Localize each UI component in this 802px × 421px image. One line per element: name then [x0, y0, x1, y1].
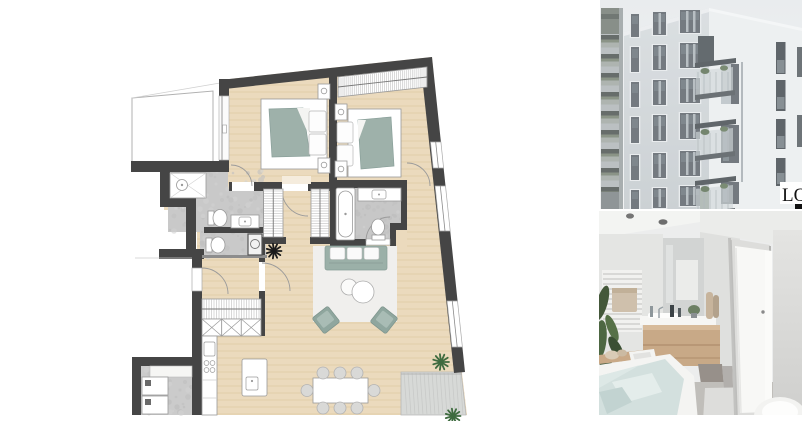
- svg-text:LO: LO: [782, 185, 802, 206]
